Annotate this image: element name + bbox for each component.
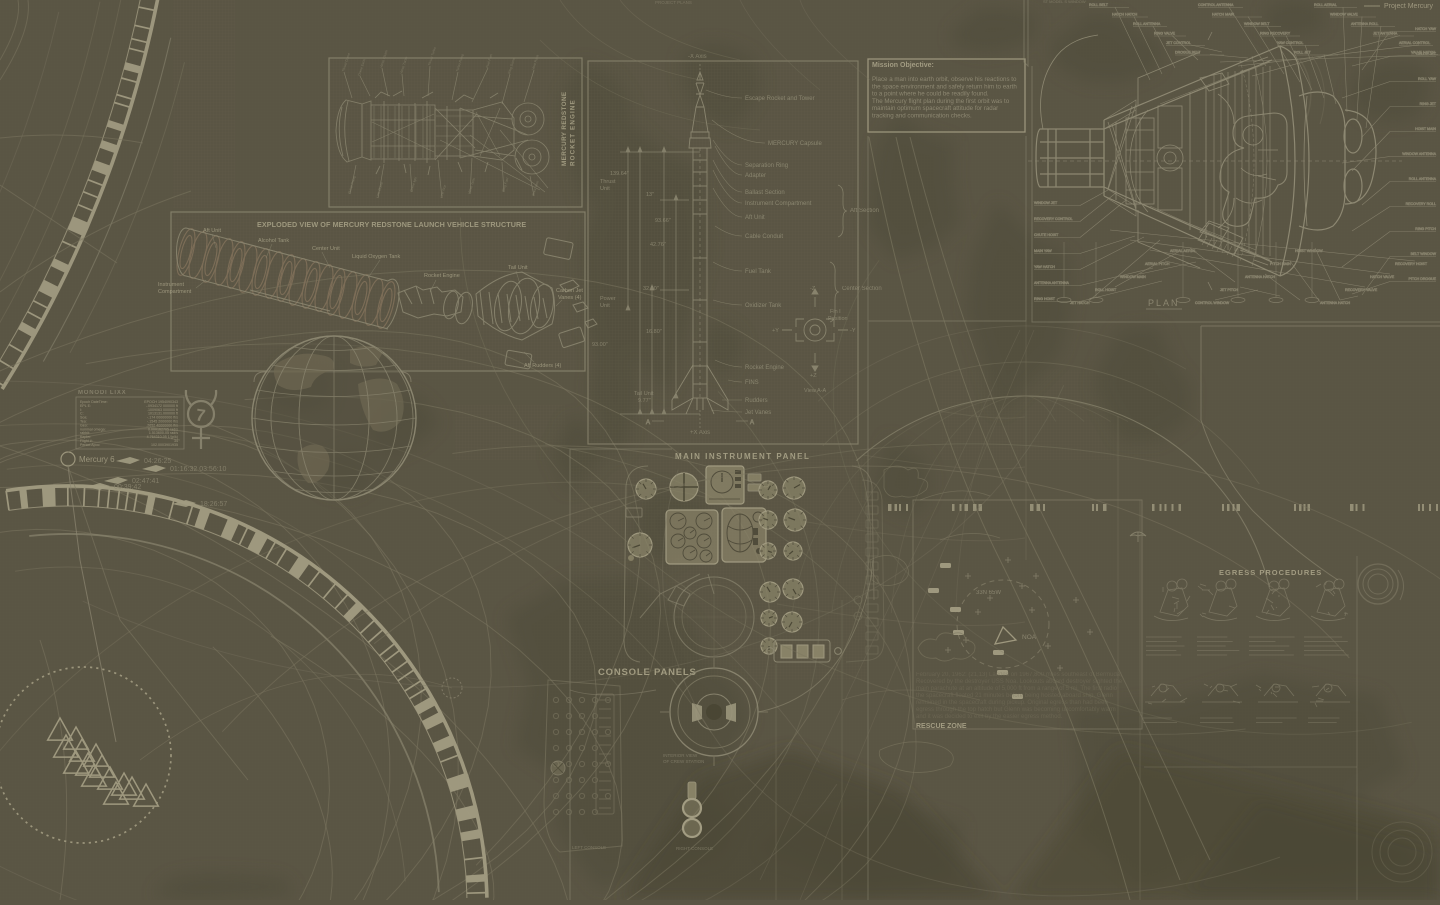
svg-text:ROCKET ENGINE: ROCKET ENGINE: [570, 99, 577, 166]
svg-text:ROLL ANTENNA: ROLL ANTENNA: [1409, 177, 1437, 181]
svg-text:EXPLODED VIEW OF MERCURY REDST: EXPLODED VIEW OF MERCURY REDSTONE LAUNCH…: [257, 220, 526, 229]
svg-text:PITCH MAIN: PITCH MAIN: [1270, 262, 1291, 266]
svg-text:ST MODEL S WINDOW: ST MODEL S WINDOW: [1043, 0, 1086, 4]
svg-text:maintain optimum spacecraft at: maintain optimum spacecraft attitude for…: [872, 105, 998, 112]
svg-text:+Z: +Z: [810, 373, 817, 379]
svg-text:HOIST MAIN: HOIST MAIN: [1415, 127, 1436, 131]
svg-text:Thrust: Thrust: [600, 179, 616, 185]
svg-text:View A-A: View A-A: [804, 388, 827, 394]
svg-text:ROLL ANTENNA: ROLL ANTENNA: [1133, 22, 1161, 26]
svg-text:13″: 13″: [646, 192, 654, 198]
svg-text:01:16:32 03:56:10: 01:16:32 03:56:10: [170, 466, 227, 473]
svg-text:Oxidizer Tank: Oxidizer Tank: [745, 303, 782, 309]
svg-text:WINDOW VALVE: WINDOW VALVE: [1330, 13, 1358, 17]
svg-text:YAW CONTROL: YAW CONTROL: [1277, 41, 1303, 45]
svg-text:9.77″: 9.77″: [638, 398, 651, 404]
svg-text:RING RECOVERY: RING RECOVERY: [1260, 32, 1291, 36]
svg-text:Liquid Oxygen Tank: Liquid Oxygen Tank: [352, 254, 400, 260]
svg-text:RECOVERY CONTROL: RECOVERY CONTROL: [1034, 217, 1073, 221]
svg-text:ROLL HOIST: ROLL HOIST: [1095, 288, 1117, 292]
svg-text:CHUTE HOIST: CHUTE HOIST: [1034, 233, 1059, 237]
svg-text:Position: Position: [828, 316, 848, 322]
svg-text:Aft Section: Aft Section: [850, 208, 879, 214]
svg-text:HATCH YAW: HATCH YAW: [1415, 27, 1436, 31]
svg-text:33N 65W: 33N 65W: [976, 590, 1001, 596]
svg-text:MERCURY REDSTONE: MERCURY REDSTONE: [561, 91, 568, 166]
svg-text:04:26:25: 04:26:25: [144, 458, 171, 465]
svg-text:ANTENNA ROLL: ANTENNA ROLL: [1351, 22, 1378, 26]
svg-text:INTERIOR VIEW: INTERIOR VIEW: [663, 753, 698, 758]
svg-text:Cable Conduit: Cable Conduit: [745, 234, 783, 240]
svg-text:Rudders: Rudders: [745, 398, 768, 404]
svg-text:18:26:57: 18:26:57: [200, 501, 227, 508]
svg-text:Place a man into earth orbit,: Place a man into earth orbit, observe hi…: [872, 76, 1017, 83]
svg-text:PROJECT PLANS: PROJECT PLANS: [655, 0, 692, 5]
svg-text:the space environment and safe: the space environment and safely return …: [872, 83, 1017, 90]
svg-text:LEFT CONSOLE: LEFT CONSOLE: [572, 845, 606, 850]
svg-text:RECOVERY HOIST: RECOVERY HOIST: [1395, 262, 1428, 266]
svg-text:MAIN YAW: MAIN YAW: [1034, 249, 1052, 253]
svg-text:ANTENNA HATCH: ANTENNA HATCH: [1245, 275, 1275, 279]
svg-text:CONTROL ANTENNA: CONTROL ANTENNA: [1198, 3, 1234, 7]
svg-text:+X Axis: +X Axis: [690, 430, 710, 436]
svg-text:32.00″: 32.00″: [643, 286, 659, 292]
svg-text:Alcohol Tank: Alcohol Tank: [258, 238, 289, 244]
svg-text:RING JET: RING JET: [1420, 102, 1437, 106]
svg-text:FINS: FINS: [745, 380, 759, 386]
svg-text:Jet Vanes: Jet Vanes: [745, 410, 771, 416]
svg-text:Rocket Engine: Rocket Engine: [424, 273, 460, 279]
svg-text:Power: Power: [600, 296, 616, 302]
svg-text:16.80″: 16.80″: [646, 329, 662, 335]
svg-text:A: A: [750, 420, 754, 426]
svg-text:00:39:42: 00:39:42: [114, 484, 141, 491]
svg-text:AERIAL CONTROL: AERIAL CONTROL: [1399, 41, 1430, 45]
svg-text:Compartment: Compartment: [158, 289, 192, 295]
svg-text:The Mercury flight plan during: The Mercury flight plan during the first…: [872, 98, 1010, 105]
svg-text:+Y: +Y: [772, 328, 779, 334]
svg-text:Project Mercury: Project Mercury: [1384, 3, 1434, 10]
svg-text:RECOVERY VALVE: RECOVERY VALVE: [1345, 288, 1378, 292]
svg-text:CHUTE JET: CHUTE JET: [1416, 52, 1437, 56]
svg-text:remained in the spacecraft dur: remained in the spacecraft during pickup…: [916, 700, 1108, 706]
svg-text:MAIN INSTRUMENT PANEL: MAIN INSTRUMENT PANEL: [675, 452, 810, 461]
svg-text:A: A: [646, 420, 650, 426]
svg-text:JET PITCH: JET PITCH: [1220, 288, 1239, 292]
svg-text:to a point where he could be r: to a point where he could be readily fou…: [872, 91, 989, 98]
svg-text:NOA: NOA: [1022, 634, 1037, 641]
svg-text:RING PITCH: RING PITCH: [1415, 227, 1436, 231]
svg-text:the spacecraft floated 21 minu: the spacecraft floated 21 minutes before…: [916, 693, 1113, 699]
svg-text:Period Apoc:: Period Apoc:: [80, 443, 100, 447]
svg-text:ROLL YAW: ROLL YAW: [1418, 77, 1437, 81]
svg-text:Aft Unit: Aft Unit: [203, 228, 222, 234]
svg-text:PITCH DROGUE: PITCH DROGUE: [1408, 277, 1436, 281]
svg-text:RIGHT CONSOLE: RIGHT CONSOLE: [676, 846, 713, 851]
svg-text:tracking and communication che: tracking and communication checks.: [872, 113, 972, 120]
svg-text:Mercury 6: Mercury 6: [79, 455, 115, 464]
svg-text:Unit: Unit: [600, 303, 610, 309]
svg-text:Tail Unit: Tail Unit: [508, 265, 528, 271]
svg-text:EGRESS PROCEDURES: EGRESS PROCEDURES: [1219, 568, 1322, 577]
svg-text:JET CONTROL: JET CONTROL: [1166, 41, 1191, 45]
svg-text:Escape Rocket and Tower: Escape Rocket and Tower: [745, 96, 815, 102]
svg-text:RING VALVE: RING VALVE: [1154, 32, 1176, 36]
svg-text:WINDOW MAIN: WINDOW MAIN: [1120, 275, 1146, 279]
svg-text:ROLL AERIAL: ROLL AERIAL: [1314, 3, 1337, 7]
svg-text:MONODI LIXX: MONODI LIXX: [78, 390, 126, 396]
svg-text:Aft Rudders (4): Aft Rudders (4): [524, 363, 561, 369]
svg-text:Unit: Unit: [600, 186, 610, 192]
svg-text:DROGUE BELT: DROGUE BELT: [1175, 51, 1201, 55]
svg-text:JET ANTENNA: JET ANTENNA: [1373, 32, 1398, 36]
svg-text:-Y: -Y: [850, 328, 856, 334]
svg-text:Aft Unit: Aft Unit: [745, 215, 765, 221]
svg-text:WINDOW ANTENNA: WINDOW ANTENNA: [1402, 152, 1436, 156]
svg-text:-X Axis: -X Axis: [688, 54, 707, 60]
svg-text:Rocket Engine: Rocket Engine: [745, 365, 785, 371]
svg-text:93.66″: 93.66″: [655, 218, 671, 224]
svg-text:102.0003901935: 102.0003901935: [151, 443, 178, 447]
svg-text:MERCURY Capsule: MERCURY Capsule: [768, 141, 822, 147]
svg-text:Ballast Section: Ballast Section: [745, 190, 785, 196]
svg-text:RING HOIST: RING HOIST: [1034, 297, 1056, 301]
svg-text:Mission Objective:: Mission Objective:: [872, 62, 934, 69]
svg-text:-Z: -Z: [810, 286, 816, 292]
svg-text:OF CREW STATION: OF CREW STATION: [663, 759, 704, 764]
svg-text:PLAN: PLAN: [1148, 298, 1180, 308]
svg-text:Center Unit: Center Unit: [312, 246, 340, 252]
svg-text:ROLL BELT: ROLL BELT: [1089, 3, 1109, 7]
svg-text:egress through the top hatch b: egress through the top hatch but Glenn w…: [916, 707, 1116, 713]
svg-text:139.64″: 139.64″: [610, 171, 629, 177]
svg-text:RECOVERY ROLL: RECOVERY ROLL: [1406, 202, 1436, 206]
svg-text:AERIAL PITCH: AERIAL PITCH: [1145, 262, 1170, 266]
svg-text:Fin I: Fin I: [830, 309, 841, 315]
svg-text:Instrument: Instrument: [158, 282, 184, 288]
svg-text:YAW HATCH: YAW HATCH: [1034, 265, 1055, 269]
svg-text:HATCH HATCH: HATCH HATCH: [1112, 13, 1138, 17]
svg-text:February 20, 1962: (21,13) Lan: February 20, 1962: (21,13) Landed on 196…: [916, 672, 1122, 678]
svg-text:RESCUE ZONE: RESCUE ZONE: [916, 723, 967, 730]
svg-text:CONTROL WINDOW: CONTROL WINDOW: [1195, 301, 1230, 305]
svg-text:Separation Ring: Separation Ring: [745, 163, 788, 169]
svg-text:Adapter: Adapter: [745, 173, 766, 179]
svg-text:Instrument Compartment: Instrument Compartment: [745, 201, 812, 207]
svg-text:42.76″: 42.76″: [650, 242, 666, 248]
svg-text:WINDOW JET: WINDOW JET: [1034, 201, 1058, 205]
svg-text:ROLL JET: ROLL JET: [1294, 51, 1311, 55]
svg-text:WINDOW BELT: WINDOW BELT: [1244, 22, 1270, 26]
svg-text:Recovered by the destroyer USS: Recovered by the destroyer USS Noa. Look…: [916, 679, 1123, 685]
svg-text:ANTENNA HATCH: ANTENNA HATCH: [1320, 301, 1350, 305]
svg-text:HATCH VALVE: HATCH VALVE: [1370, 275, 1395, 279]
svg-text:Carbon Jet: Carbon Jet: [556, 288, 583, 294]
svg-text:HATCH MAIN: HATCH MAIN: [1212, 13, 1234, 17]
svg-text:93.00″: 93.00″: [592, 342, 608, 348]
svg-text:Tail Unit: Tail Unit: [634, 391, 654, 397]
svg-text:BELT WINDOW: BELT WINDOW: [1411, 252, 1437, 256]
svg-text:Fuel Tank: Fuel Tank: [745, 269, 772, 275]
svg-text:main parachute at an altitude: main parachute at an altitude of 5,000 f…: [916, 686, 1118, 692]
